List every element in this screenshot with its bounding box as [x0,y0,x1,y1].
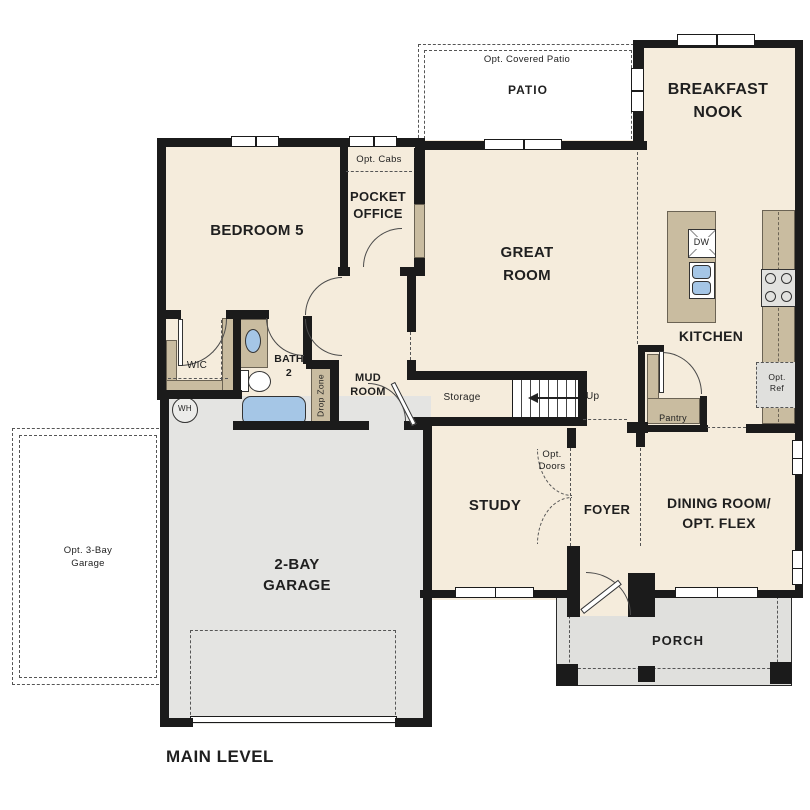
label-wh: WH [172,404,198,414]
window-mullion [373,137,375,146]
label-bedroom5: BEDROOM 5 [177,221,337,241]
label-opt-ref: Opt. Ref [757,372,797,393]
window [455,587,534,598]
opening-dashed [410,332,411,360]
window [484,139,562,150]
door-leaf [659,351,664,393]
wall [157,310,181,319]
window-mullion [632,90,643,92]
wall [413,417,579,426]
label-foyer: FOYER [572,502,642,519]
label-wic: WIC [172,359,222,372]
label-dining-room: DINING ROOM/ OPT. FLEX [639,493,799,534]
garage-door-panel [190,716,397,723]
porch-post [556,664,578,686]
porch-dashed-bottom [558,668,790,669]
label-bath2: BATH 2 [259,353,319,380]
label-pantry: Pantry [648,413,698,425]
window [792,440,803,475]
wall [700,396,707,432]
sink-bowl [692,265,711,279]
dishwasher: DW [688,229,716,258]
wall [567,428,576,448]
wall [636,428,645,447]
label-opt-covered-patio: Opt. Covered Patio [447,54,607,66]
burner [781,273,792,284]
opening-dashed [583,419,627,420]
label-main-level: MAIN LEVEL [166,746,386,768]
label-up: Up [586,390,616,403]
wall [157,138,166,400]
label-opt-doors: Opt. Doors [522,449,582,474]
kitchen-sink [689,262,715,299]
floor-plan: DW [0,0,810,810]
label-pocket-office: POCKET OFFICE [328,189,428,223]
label-storage: Storage [427,391,497,404]
opt-cabs-dashed [346,171,412,172]
window [231,136,279,147]
label-opt-3bay-garage: Opt. 3-Bay Garage [33,545,143,571]
wall [160,390,242,399]
label-mud-room: MUD ROOM [334,372,402,400]
stove [761,269,796,307]
window [349,136,397,147]
wall [338,267,350,276]
wall [395,718,432,727]
wall [407,371,587,380]
label-opt-cabs: Opt. Cabs [339,154,419,166]
porch-post [638,666,655,682]
window-mullion [717,588,719,597]
stairs-direction-line [538,397,582,399]
wall [333,421,369,430]
wic-shelf-dashed [168,378,228,379]
label-patio: PATIO [488,83,568,99]
label-porch: PORCH [638,633,718,650]
window-mullion [793,568,802,570]
label-2bay-garage: 2-BAY GARAGE [227,554,367,596]
burner [765,273,776,284]
wall [423,426,432,726]
opening-dashed [637,152,638,344]
wall [567,546,580,617]
wall [638,345,645,432]
stairs-direction-arrowhead [528,393,538,403]
label-drop-zone: Drop Zone [315,361,326,431]
label-study: STUDY [445,496,545,516]
label-breakfast-nook: BREAKFAST NOOK [643,78,793,124]
wall [160,390,169,727]
window [675,587,758,598]
burner [781,291,792,302]
wall [233,316,241,396]
stair-tread [521,378,522,417]
dishwasher-label: DW [691,237,712,249]
wall [407,275,416,332]
vanity-sink [245,329,261,353]
porch-post [770,662,792,684]
label-kitchen: KITCHEN [656,327,766,345]
sink-bowl [692,281,711,295]
window-mullion [255,137,257,146]
wall [628,573,655,617]
wall [638,425,708,432]
window-mullion [495,588,497,597]
label-great-room: GREAT ROOM [467,242,587,287]
window [677,34,755,46]
window-mullion [793,458,802,460]
garage-door-dashed [190,630,396,720]
opening-dashed [707,427,746,428]
window-mullion [716,35,718,45]
window-mullion [523,140,525,149]
window [792,550,803,585]
burner [765,291,776,302]
